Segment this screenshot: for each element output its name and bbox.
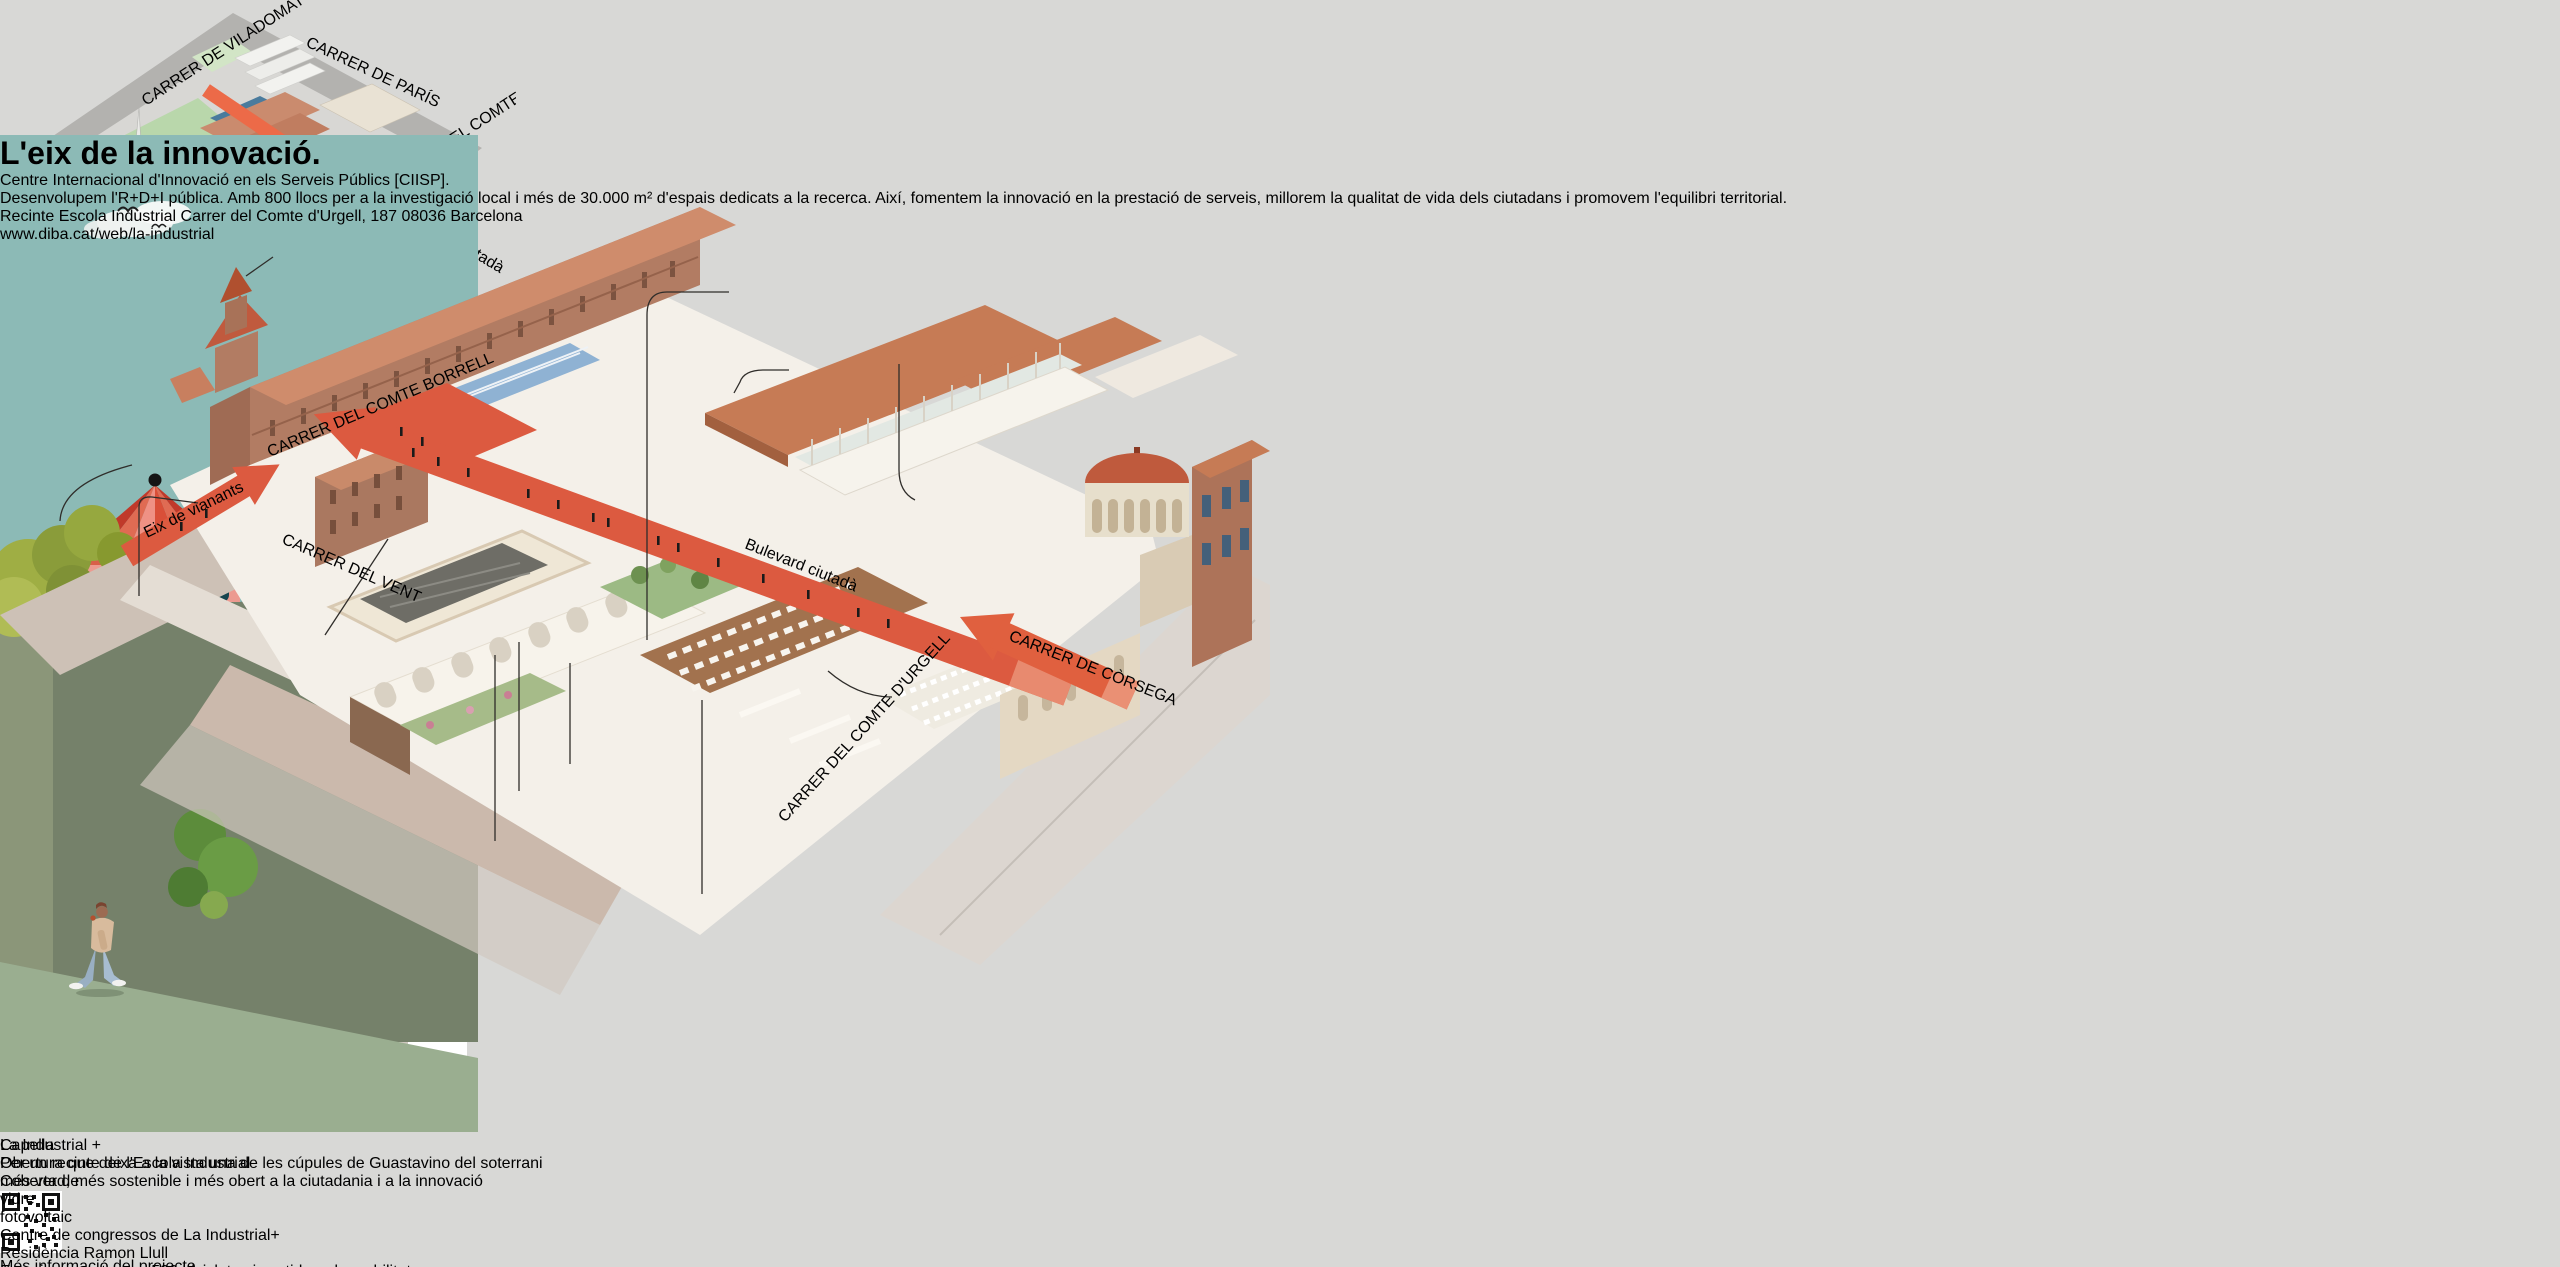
right-body-text: Desenvolupem l'R+D+I pública. Amb 800 ll… — [0, 190, 1787, 208]
annotation-line: bicicletes i vestidors — [182, 1263, 324, 1267]
right-title-line: innovació. — [162, 135, 320, 171]
right-title-line: L'eix de la — [0, 135, 153, 171]
annotation-obertura: Obertura que deixa a la vista una de les… — [0, 1155, 1270, 1173]
address-line: Carrer del Comte d'Urgell, 187 — [181, 208, 397, 225]
brochure-spread: L'eix de la innovació 30.000 m² destinat… — [0, 0, 2560, 1267]
annotation-line: de Guastavino del soterrani — [347, 1155, 543, 1172]
right-org: Centre Internacional d'Innovació en els … — [0, 172, 1787, 190]
website-url: www.diba.cat/web/la-industrial — [0, 226, 1787, 244]
annotation-line: de La Industrial+ — [161, 1227, 280, 1244]
annotation-line: Centre de congressos — [0, 1227, 157, 1244]
annotation-congressos: Centre de congressos de La Industrial+ — [0, 1227, 1270, 1245]
right-text-panel: L'eix de la innovació. Centre Internacio… — [0, 135, 1787, 1132]
org-line: Centre Internacional — [0, 172, 144, 189]
annotation-line: de mobilitat — [329, 1263, 411, 1267]
annotation-estacionament: Estacionament per a 500 bicicletes i ves… — [0, 1263, 1270, 1267]
annotation-line: vista una de les cúpules — [172, 1155, 343, 1172]
annotation-line: Estacionament per a 500 — [0, 1263, 178, 1267]
org-line: d'Innovació en els — [149, 172, 277, 189]
address-name: Recinte Escola Industrial — [0, 208, 176, 225]
annotation-residencia: Residència Ramon Llull — [0, 1245, 1270, 1263]
annotation-line: fotovoltaic — [0, 1209, 72, 1226]
address-block: Recinte Escola Industrial Carrer del Com… — [0, 208, 1787, 226]
right-title: L'eix de la innovació. — [0, 135, 1787, 172]
card-sub-line: i a la innovació — [377, 1173, 483, 1190]
address-line: 08036 Barcelona — [401, 208, 522, 225]
org-line: Serveis Públics [CIISP]. — [281, 172, 450, 189]
annotation-coberta: Coberta de vidre fotovoltaic — [0, 1173, 110, 1227]
annotation-line: Obertura que deixa a la — [0, 1155, 167, 1172]
annotation-line: Coberta de vidre — [0, 1173, 79, 1208]
annotation-line: Residència — [0, 1245, 79, 1262]
annotation-capella: Capella — [0, 1137, 1270, 1155]
annotation-line: Capella — [0, 1137, 54, 1154]
annotation-line: Ramon Llull — [84, 1245, 168, 1262]
card-sub-line: més obert a la ciutadania — [194, 1173, 373, 1190]
